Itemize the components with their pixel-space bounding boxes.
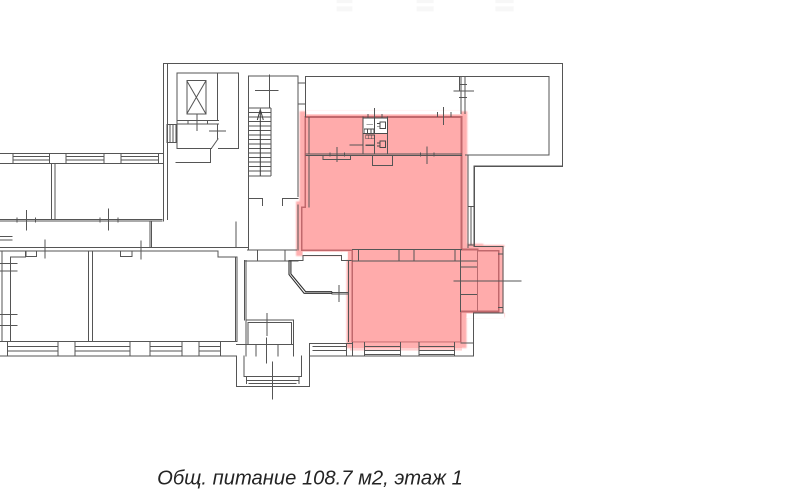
svg-text:Общ. питание 108.7 м2, этаж 1: Общ. питание 108.7 м2, этаж 1 <box>157 468 463 490</box>
